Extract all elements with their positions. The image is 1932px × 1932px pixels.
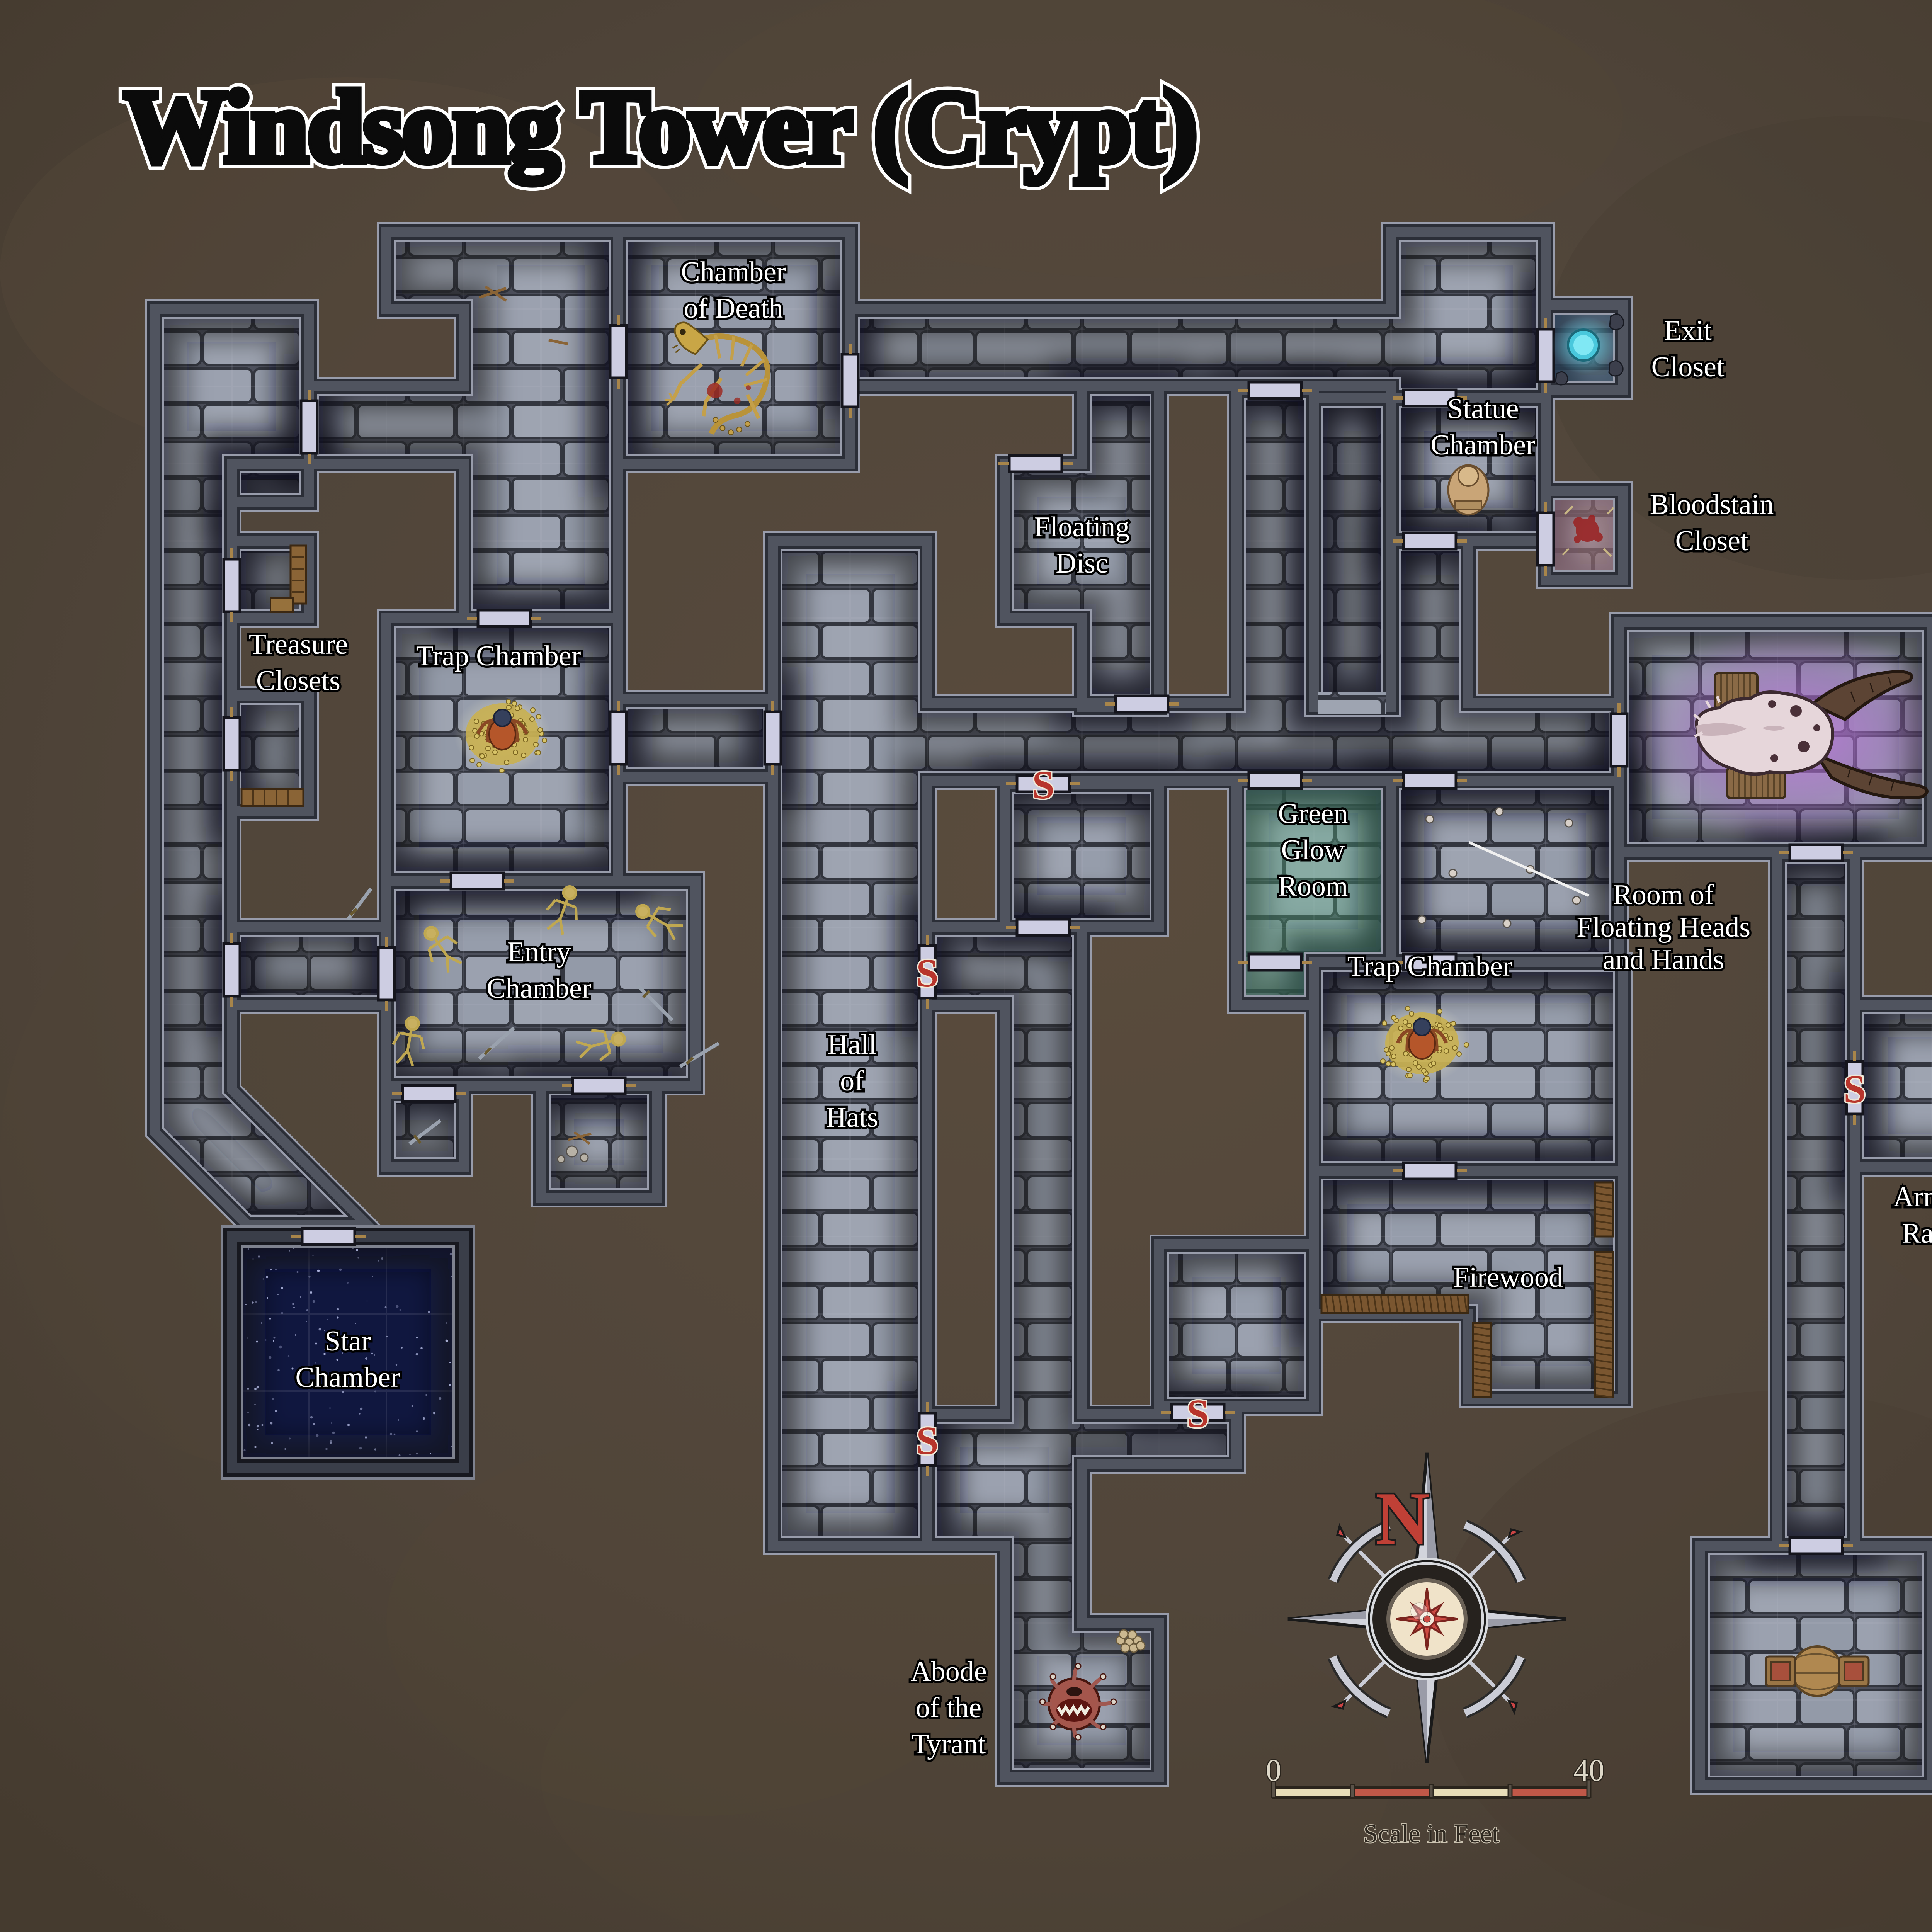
- svg-text:Scale in Feet: Scale in Feet: [1363, 1819, 1499, 1848]
- svg-text:Green: Green: [1278, 798, 1348, 830]
- svg-text:Chamber: Chamber: [681, 256, 786, 288]
- svg-text:of Death: of Death: [684, 293, 783, 324]
- svg-text:Hall: Hall: [827, 1029, 876, 1061]
- svg-text:Exit: Exit: [1664, 315, 1712, 347]
- svg-text:S: S: [916, 1418, 939, 1463]
- svg-text:Armor: Armor: [1893, 1181, 1932, 1213]
- svg-text:Firewood: Firewood: [1453, 1262, 1563, 1293]
- svg-text:S: S: [916, 951, 939, 995]
- svg-text:S: S: [1187, 1391, 1209, 1436]
- svg-text:Abode: Abode: [910, 1656, 986, 1687]
- svg-text:Closets: Closets: [256, 665, 340, 697]
- svg-text:Room of: Room of: [1613, 879, 1714, 911]
- svg-text:Disc: Disc: [1056, 548, 1108, 579]
- svg-text:40: 40: [1573, 1753, 1604, 1787]
- svg-text:Statue: Statue: [1447, 393, 1519, 425]
- svg-text:Rack: Rack: [1902, 1218, 1932, 1249]
- svg-text:of the: of the: [916, 1692, 982, 1724]
- svg-text:Tyrant: Tyrant: [912, 1728, 986, 1760]
- svg-text:Chamber: Chamber: [1430, 429, 1535, 461]
- svg-text:Treasure: Treasure: [249, 629, 348, 660]
- svg-text:Bloodstain: Bloodstain: [1650, 489, 1774, 520]
- svg-text:Room: Room: [1278, 871, 1348, 902]
- svg-text:Chamber: Chamber: [486, 973, 591, 1004]
- svg-text:of: of: [840, 1065, 864, 1097]
- svg-text:0: 0: [1266, 1753, 1281, 1787]
- svg-text:Floating: Floating: [1034, 511, 1130, 543]
- svg-text:Glow: Glow: [1281, 834, 1345, 866]
- svg-text:and Hands: and Hands: [1603, 944, 1724, 976]
- svg-text:Trap Chamber: Trap Chamber: [416, 640, 581, 672]
- svg-text:Floating Heads: Floating Heads: [1577, 912, 1750, 943]
- svg-text:Hats: Hats: [826, 1102, 878, 1133]
- svg-text:Closet: Closet: [1675, 525, 1748, 557]
- svg-text:Chamber: Chamber: [295, 1362, 400, 1393]
- svg-text:S: S: [1844, 1067, 1866, 1111]
- svg-text:Windsong Tower (Crypt): Windsong Tower (Crypt): [124, 69, 1198, 186]
- svg-text:S: S: [1032, 763, 1054, 807]
- svg-text:N: N: [1376, 1477, 1430, 1560]
- svg-text:Entry: Entry: [507, 936, 571, 968]
- svg-text:Star: Star: [325, 1325, 371, 1357]
- svg-text:Closet: Closet: [1651, 351, 1725, 383]
- svg-text:Trap Chamber: Trap Chamber: [1347, 951, 1512, 982]
